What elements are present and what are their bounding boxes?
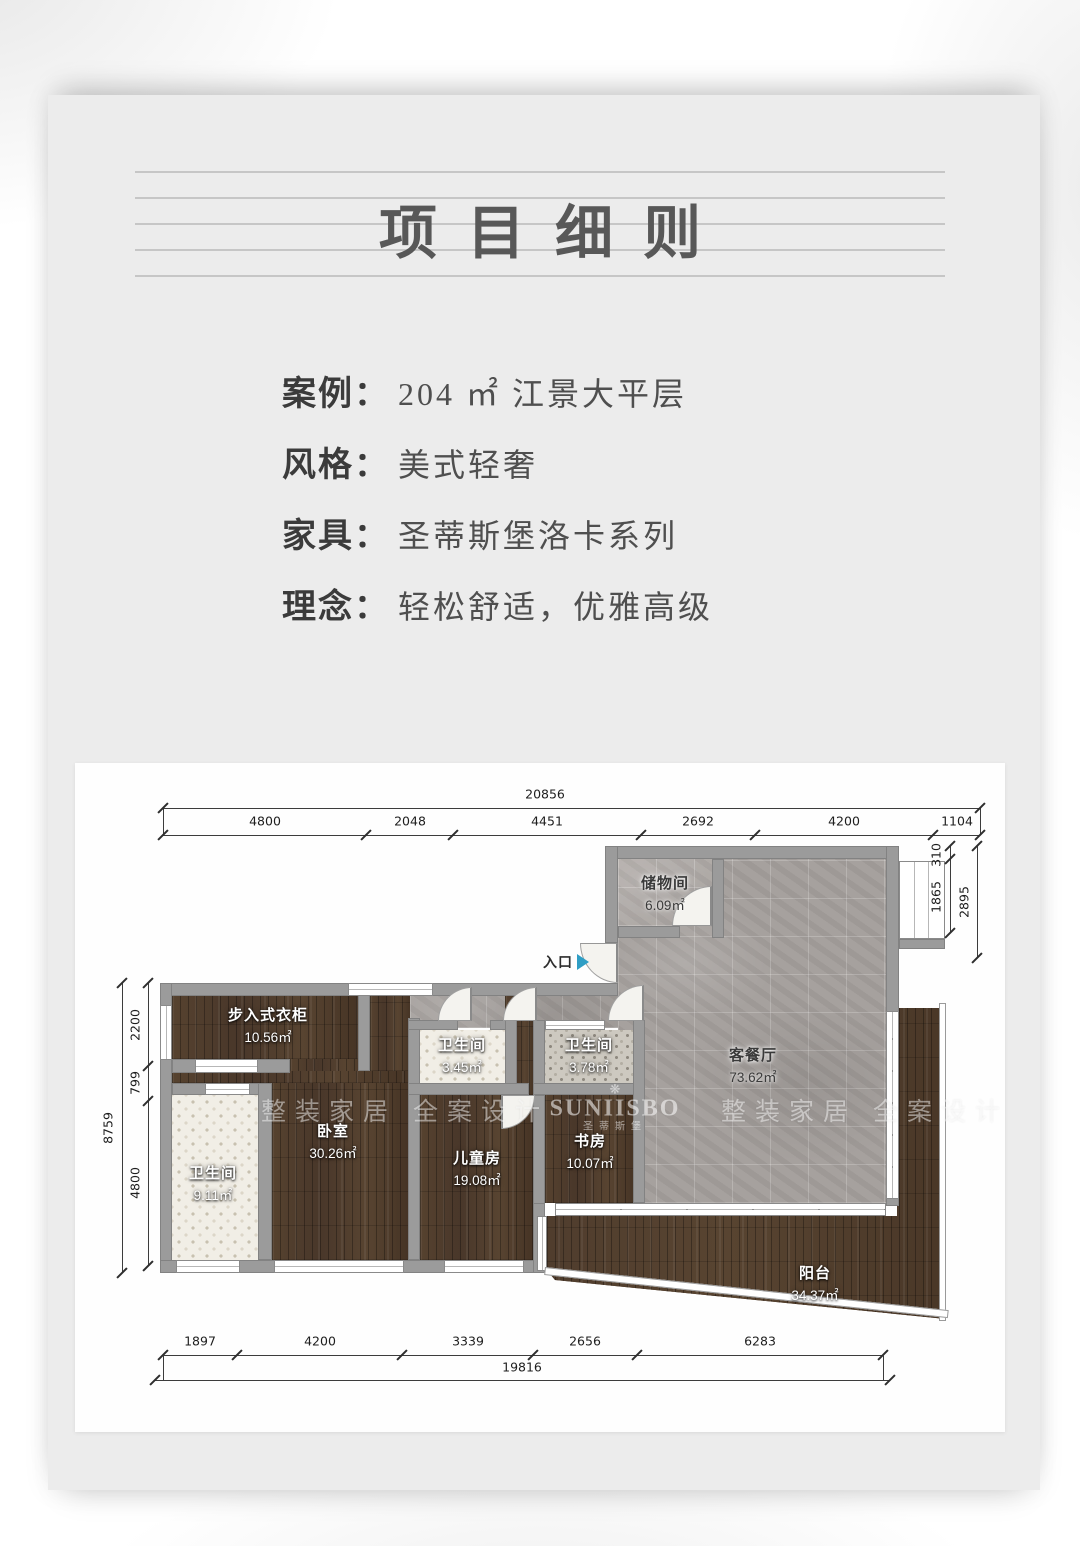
- room-label-bathroom-911: 卫生间 9.11㎡: [189, 1162, 237, 1204]
- dim-value: 8759: [101, 1112, 116, 1144]
- room-label-storage: 储物间 6.09㎡: [641, 872, 689, 914]
- info-value: 圣蒂斯堡洛卡系列: [398, 511, 678, 557]
- info-label: 案例: [282, 366, 354, 415]
- info-separator: ：: [354, 437, 388, 486]
- dim-value: 2656: [569, 1334, 601, 1349]
- dim-line: [122, 983, 123, 1273]
- room-name: 卧室: [309, 1120, 356, 1141]
- window: [160, 1005, 172, 1060]
- wall: [605, 846, 897, 859]
- entrance-label: 入口: [543, 952, 573, 972]
- info-label: 风格: [282, 437, 354, 486]
- dim-line: [977, 846, 978, 958]
- sliding-door: [205, 1083, 250, 1095]
- room-area: 10.56㎡: [228, 1026, 308, 1046]
- room-name: 卫生间: [189, 1162, 237, 1183]
- wall: [633, 1020, 645, 1203]
- dim-value: 20856: [525, 787, 565, 802]
- room-area: 30.26㎡: [309, 1142, 356, 1162]
- room-label-bathroom-345: 卫生间 3.45㎡: [438, 1034, 486, 1076]
- dim-value: 4800: [128, 1167, 143, 1199]
- wall: [408, 1020, 458, 1030]
- dim-value: 799: [128, 1071, 143, 1095]
- window: [886, 1011, 899, 1199]
- dim-line: [883, 1355, 884, 1380]
- info-value: 轻松舒适，优雅高级: [398, 582, 713, 628]
- room-label-bedroom: 卧室 30.26㎡: [309, 1120, 356, 1162]
- dim-line: [163, 808, 980, 809]
- info-value: 美式轻奢: [398, 440, 538, 486]
- dim-value: 4200: [828, 814, 860, 829]
- room-label-bathroom-378: 卫生间 3.78㎡: [565, 1034, 613, 1076]
- info-value: 204 ㎡ 江景大平层: [398, 369, 687, 415]
- project-info: 案例：204 ㎡ 江景大平层 风格：美式轻奢 家具：圣蒂斯堡洛卡系列 理念：轻松…: [282, 366, 713, 628]
- room-name: 客餐厅: [729, 1044, 777, 1065]
- window: [545, 1020, 605, 1030]
- dim-value: 6283: [744, 1334, 776, 1349]
- info-row-case: 案例：204 ㎡ 江景大平层: [282, 366, 713, 415]
- title-rule-line: [135, 171, 945, 173]
- dim-value: 2200: [128, 1009, 143, 1041]
- sliding-door: [195, 1059, 258, 1073]
- wall: [605, 846, 618, 943]
- room-area: 6.09㎡: [641, 894, 689, 914]
- room-name: 儿童房: [453, 1147, 501, 1168]
- dim-value: 2048: [394, 814, 426, 829]
- dim-line: [163, 1355, 883, 1356]
- window: [176, 1260, 240, 1273]
- hallway-wood-floor: [370, 995, 410, 1071]
- entrance-marker: 入口: [543, 952, 589, 972]
- dim-line: [155, 1380, 890, 1381]
- wall: [899, 939, 945, 949]
- room-label-children-room: 儿童房 19.08㎡: [453, 1147, 501, 1189]
- room-area: 10.07㎡: [566, 1152, 613, 1172]
- room-area: 3.78㎡: [565, 1056, 613, 1076]
- dim-line: [163, 1355, 164, 1380]
- dim-value: 1104: [941, 814, 973, 829]
- dim-value: 1897: [184, 1334, 216, 1349]
- dim-line: [163, 835, 980, 836]
- room-name: 阳台: [791, 1262, 838, 1283]
- balcony-railing: [939, 1003, 946, 1321]
- info-row-concept: 理念：轻松舒适，优雅高级: [282, 579, 713, 628]
- room-area: 34.37㎡: [791, 1284, 838, 1304]
- room-area: 73.62㎡: [729, 1066, 777, 1086]
- room-label-balcony: 阳台 34.37㎡: [791, 1262, 838, 1304]
- bedroom-floor: [272, 1083, 408, 1260]
- info-row-furniture: 家具：圣蒂斯堡洛卡系列: [282, 508, 713, 557]
- room-name: 卫生间: [565, 1034, 613, 1055]
- room-label-study: 书房 10.07㎡: [566, 1130, 613, 1172]
- dim-value: 2692: [682, 814, 714, 829]
- page-title: 项目细则: [0, 186, 1080, 270]
- room-label-walk-in-closet: 步入式衣柜 10.56㎡: [228, 1004, 308, 1046]
- wall: [408, 1083, 529, 1095]
- title-rule-line: [135, 275, 945, 277]
- floorplan: 20856 4800 2048 4451 2692 4200 1104 1897…: [75, 763, 1005, 1432]
- dim-value: 4451: [531, 814, 563, 829]
- window: [274, 1260, 404, 1273]
- dim-value: 4200: [304, 1334, 336, 1349]
- room-label-living-dining: 客餐厅 73.62㎡: [729, 1044, 777, 1086]
- dim-value: 310: [929, 843, 944, 867]
- balcony-side-rail: [537, 1216, 547, 1271]
- window: [348, 983, 433, 996]
- info-separator: ：: [354, 508, 388, 557]
- room-name: 卫生间: [438, 1034, 486, 1055]
- dim-value: 4800: [249, 814, 281, 829]
- wall: [358, 995, 370, 1071]
- info-row-style: 风格：美式轻奢: [282, 437, 713, 486]
- info-separator: ：: [354, 366, 388, 415]
- wall: [533, 1083, 645, 1095]
- room-area: 3.45㎡: [438, 1056, 486, 1076]
- room-name: 步入式衣柜: [228, 1004, 308, 1025]
- wall: [258, 1083, 272, 1260]
- room-area: 9.11㎡: [189, 1184, 237, 1204]
- window: [444, 1260, 524, 1273]
- wall: [618, 926, 680, 938]
- room-name: 书房: [566, 1130, 613, 1151]
- room-name: 储物间: [641, 872, 689, 893]
- dim-value: 19816: [502, 1360, 542, 1375]
- info-label: 理念: [282, 579, 354, 628]
- dim-value: 3339: [452, 1334, 484, 1349]
- wall: [408, 1018, 420, 1260]
- info-separator: ：: [354, 579, 388, 628]
- dim-value: 2895: [957, 886, 972, 918]
- info-label: 家具: [282, 508, 354, 557]
- dim-line: [148, 983, 149, 1266]
- dim-value: 1865: [929, 881, 944, 913]
- balcony-sliding-window: [555, 1203, 886, 1216]
- room-area: 19.08㎡: [453, 1169, 501, 1189]
- wall: [712, 859, 724, 938]
- entrance-arrow-icon: [577, 954, 589, 970]
